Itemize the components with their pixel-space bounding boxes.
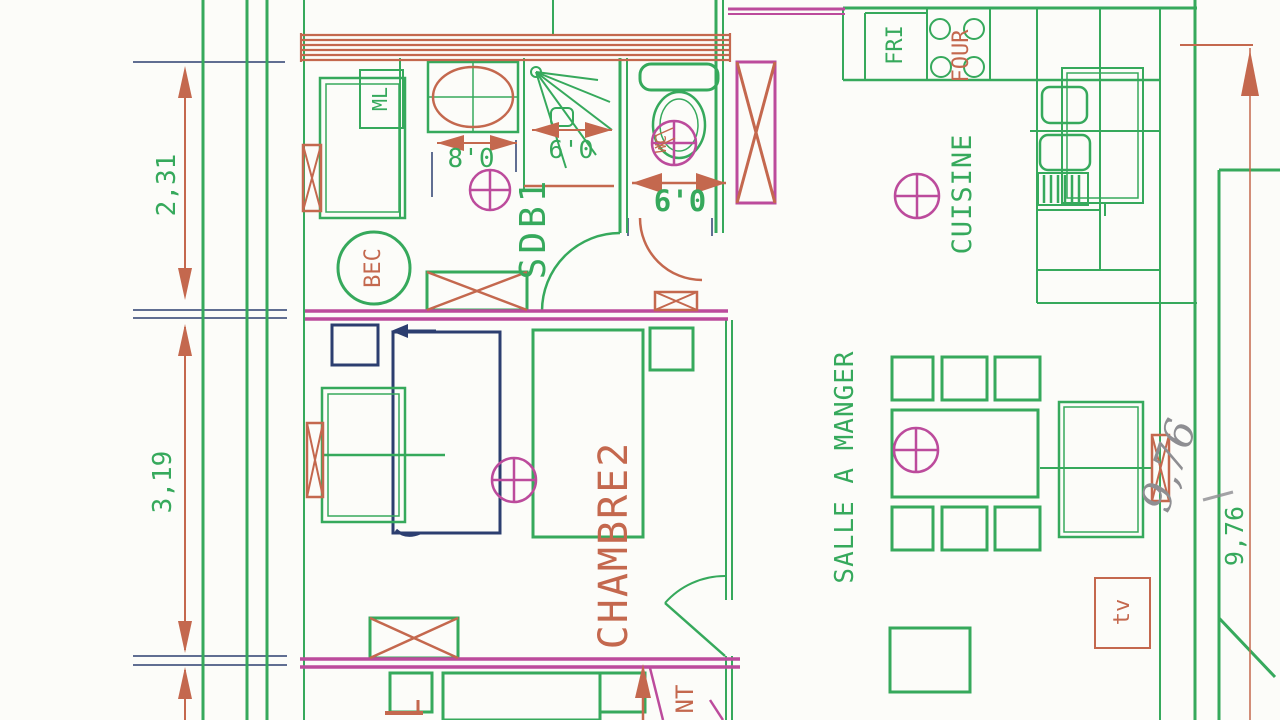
dimension-lines (178, 45, 1259, 720)
pen-reference-lines (133, 62, 712, 665)
green-wall-lines (203, 0, 1280, 720)
bedroom-furniture (322, 328, 725, 656)
hatched-top-wall (301, 33, 730, 62)
floor-plan-page: 2,31 3,19 8'0 6'0 6'0 9,76 SDB1 WC CUISI… (0, 0, 1280, 720)
floor-plan-drawing (0, 0, 1280, 720)
hand-drawn-bed-sketch (332, 324, 500, 535)
